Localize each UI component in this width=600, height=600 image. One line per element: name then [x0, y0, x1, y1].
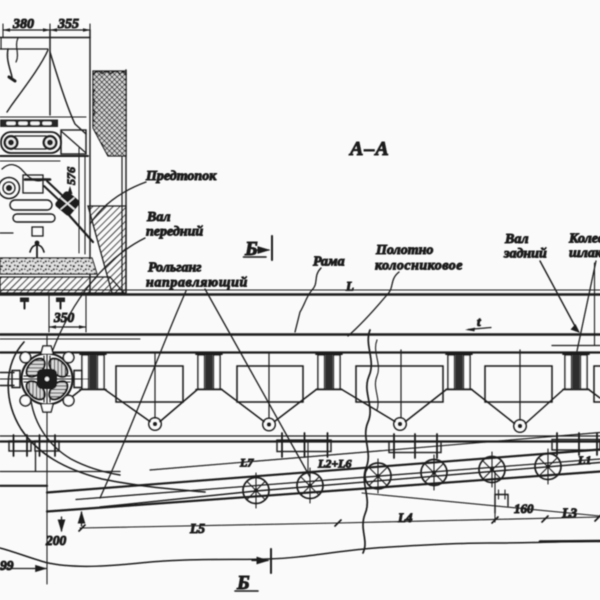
svg-text:Рама: Рама: [313, 255, 345, 270]
svg-text:L5: L5: [189, 521, 205, 536]
svg-text:355: 355: [57, 17, 79, 32]
svg-text:L2+L6: L2+L6: [317, 457, 352, 471]
svg-text:Вал: Вал: [504, 232, 529, 247]
svg-text:А–А: А–А: [348, 138, 390, 160]
svg-text:99: 99: [0, 558, 14, 573]
svg-text:L4: L4: [397, 510, 413, 525]
svg-text:Предтопок: Предтопок: [145, 169, 217, 184]
svg-text:L1: L1: [577, 453, 591, 467]
svg-text:Вал: Вал: [146, 210, 171, 225]
svg-text:передний: передний: [146, 225, 203, 240]
svg-text:L: L: [345, 279, 354, 294]
svg-text:576: 576: [64, 167, 78, 185]
svg-text:Полотно: Полотно: [375, 243, 433, 258]
svg-text:L7: L7: [239, 456, 254, 470]
svg-text:направляющий: направляющий: [146, 276, 248, 291]
svg-text:Колесо: Колесо: [568, 232, 600, 247]
svg-text:Рольганг: Рольганг: [148, 261, 201, 276]
svg-text:задний: задний: [503, 247, 547, 262]
svg-text:t: t: [477, 314, 481, 329]
svg-text:колосниковое: колосниковое: [375, 259, 463, 274]
svg-text:шлаков: шлаков: [569, 246, 600, 261]
svg-text:200: 200: [45, 533, 67, 548]
